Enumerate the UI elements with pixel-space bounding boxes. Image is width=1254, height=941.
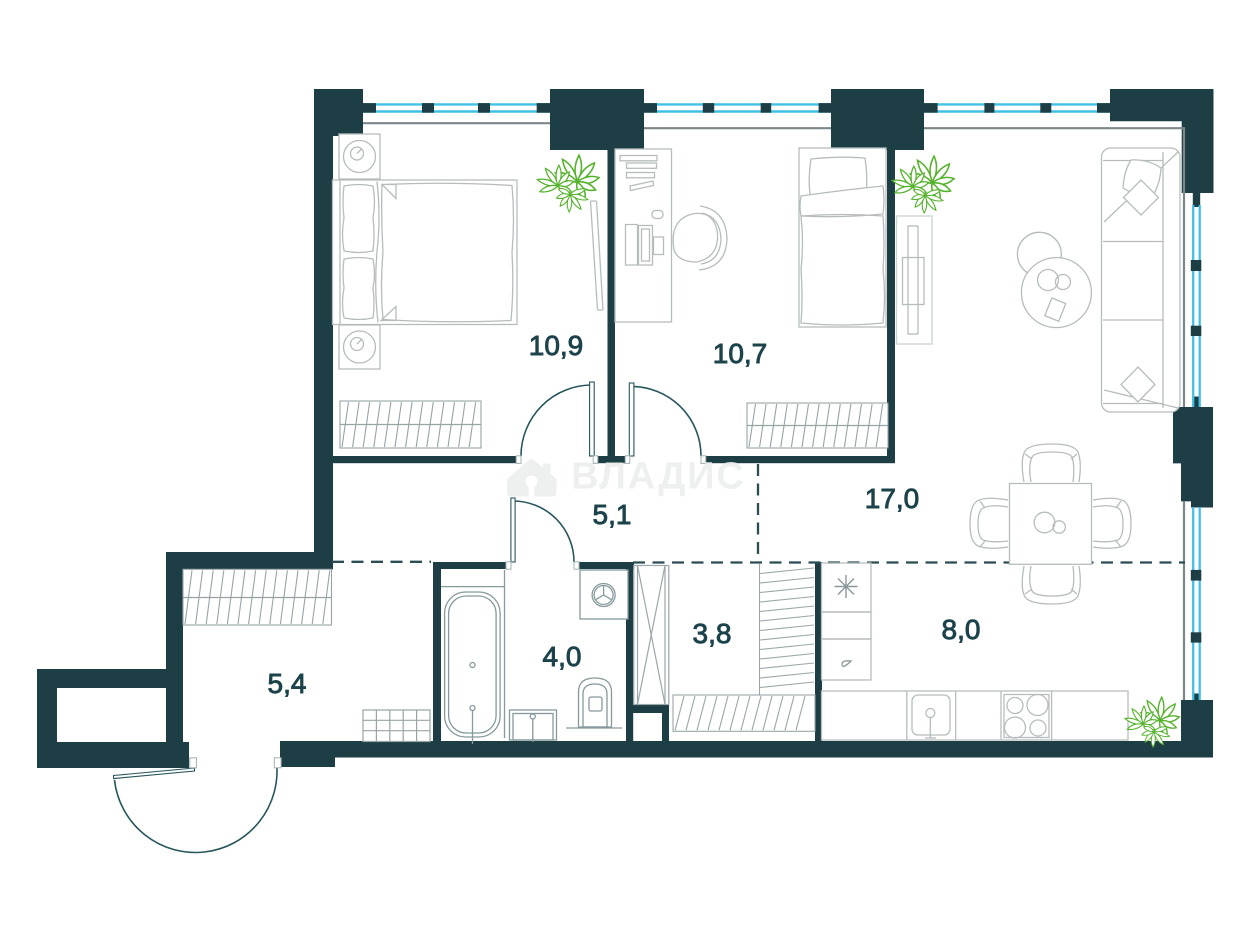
svg-text:5,4: 5,4 [268,668,307,699]
svg-text:10,9: 10,9 [529,330,584,361]
svg-text:4,0: 4,0 [543,641,582,672]
svg-text:ВЛАДИС: ВЛАДИС [571,456,746,498]
svg-text:8,0: 8,0 [942,614,981,645]
svg-text:17,0: 17,0 [865,483,920,514]
svg-text:5,1: 5,1 [593,499,632,530]
svg-text:3,8: 3,8 [693,618,732,649]
svg-text:10,7: 10,7 [713,338,768,369]
